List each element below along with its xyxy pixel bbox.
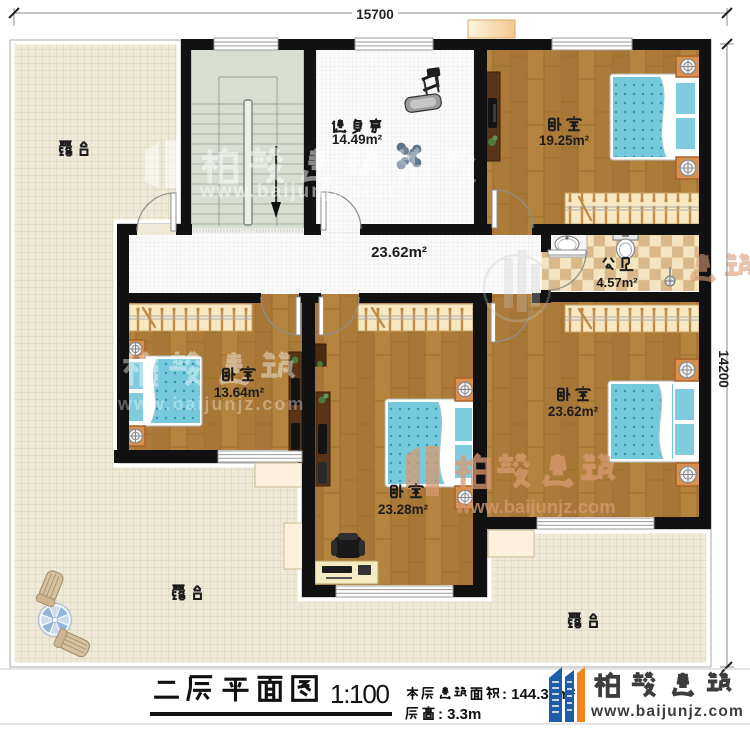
- svg-text:14200: 14200: [716, 350, 731, 388]
- svg-text:23.62m²: 23.62m²: [371, 244, 427, 261]
- svg-text:15700: 15700: [356, 7, 394, 22]
- svg-text:4.57m²: 4.57m²: [596, 275, 638, 290]
- svg-text:www.baijunjz.com: www.baijunjz.com: [455, 496, 616, 517]
- svg-text:23.28m²: 23.28m²: [378, 502, 429, 517]
- svg-text:www.baijunjz.com: www.baijunjz.com: [199, 181, 396, 202]
- svg-text:: 144.36m²: : 144.36m²: [502, 686, 575, 703]
- svg-text:: 3.3m: : 3.3m: [438, 706, 481, 723]
- svg-text:www.baijunjz.com: www.baijunjz.com: [117, 394, 305, 414]
- svg-text:19.25m²: 19.25m²: [539, 133, 590, 148]
- svg-text:23.62m²: 23.62m²: [548, 404, 599, 419]
- svg-text:14.49m²: 14.49m²: [332, 132, 383, 147]
- svg-text:13.64m²: 13.64m²: [214, 385, 265, 400]
- svg-text:1:100: 1:100: [330, 679, 390, 709]
- svg-text:www.baijunjz.com: www.baijunjz.com: [590, 703, 744, 720]
